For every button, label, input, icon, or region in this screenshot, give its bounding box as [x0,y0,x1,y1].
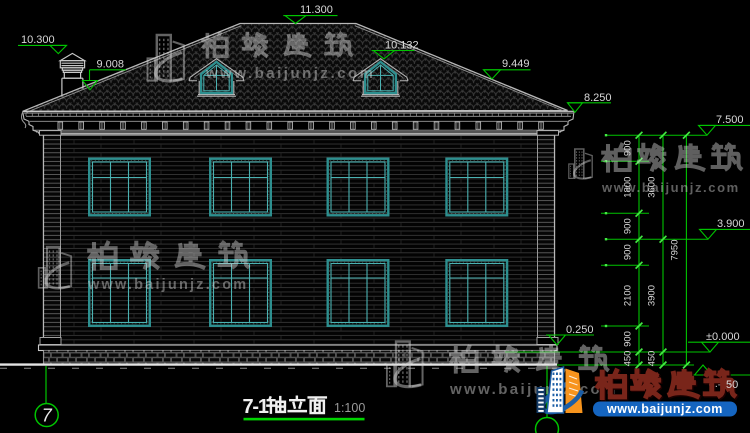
svg-text:7950: 7950 [670,240,681,261]
svg-text:0.250: 0.250 [566,324,594,336]
svg-text:450: 450 [623,351,634,367]
svg-text:450: 450 [647,351,658,367]
svg-text:www.baijunjz.com: www.baijunjz.com [87,277,248,293]
svg-text:7-1: 7-1 [243,396,269,418]
svg-text:7.500: 7.500 [716,114,744,126]
svg-text:50: 50 [726,379,738,391]
svg-text:900: 900 [623,331,634,347]
svg-text:1:100: 1:100 [334,401,365,415]
svg-text:900: 900 [623,218,634,234]
svg-text:900: 900 [623,244,634,260]
svg-text:3.900: 3.900 [717,218,745,230]
svg-text:7: 7 [42,406,53,426]
svg-text:2100: 2100 [623,285,634,306]
svg-text:9.008: 9.008 [97,59,125,71]
svg-text:9.449: 9.449 [502,58,530,70]
svg-text:8.250: 8.250 [584,92,612,104]
svg-text:10.132: 10.132 [385,40,419,52]
svg-text:www.baijunjz.com: www.baijunjz.com [449,381,618,398]
svg-text:www.baijunjz.com: www.baijunjz.com [606,402,723,416]
svg-text:±0.000: ±0.000 [706,331,740,343]
svg-text:www.baijunjz.com: www.baijunjz.com [601,180,740,195]
svg-text:3900: 3900 [647,285,658,306]
svg-text:10.300: 10.300 [21,34,55,46]
svg-text:11.300: 11.300 [300,4,333,16]
svg-text:www.baijunjz.com: www.baijunjz.com [205,65,375,82]
